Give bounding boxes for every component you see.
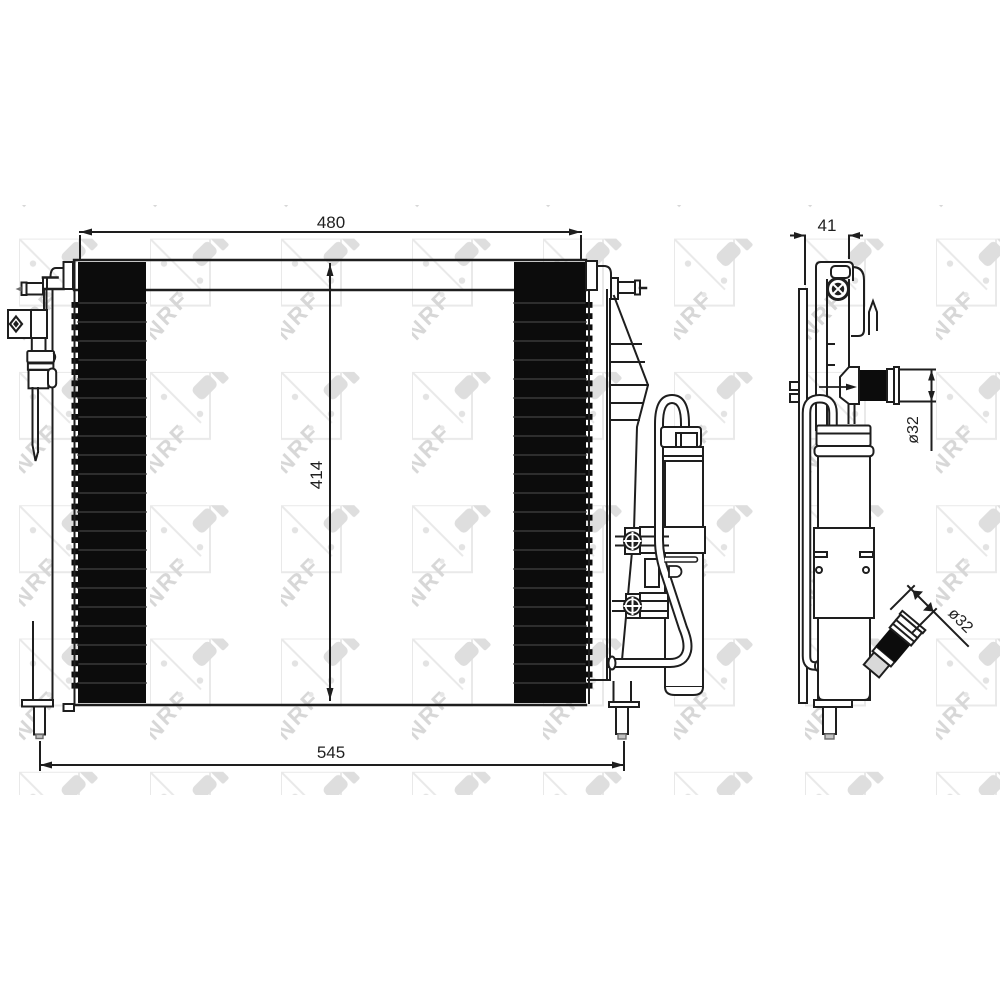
svg-text:41: 41: [818, 216, 837, 235]
svg-text:414: 414: [307, 461, 326, 489]
svg-text:ø32: ø32: [905, 416, 922, 444]
svg-text:545: 545: [317, 743, 345, 762]
svg-text:480: 480: [317, 213, 345, 232]
